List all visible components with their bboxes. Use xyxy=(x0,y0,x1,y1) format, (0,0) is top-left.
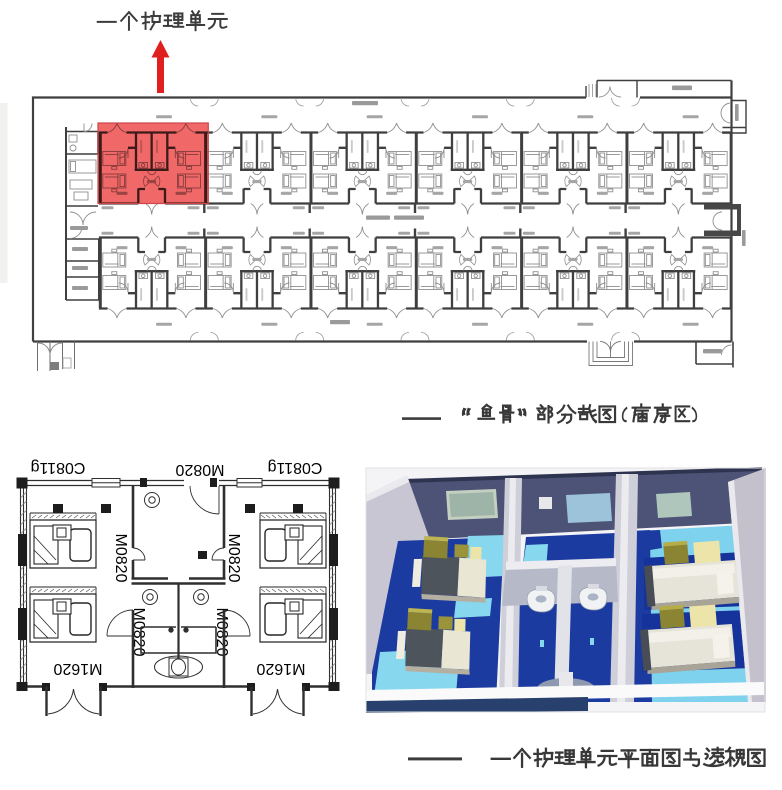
svg-text:M1620: M1620 xyxy=(256,660,305,677)
svg-text:C0811g: C0811g xyxy=(31,459,86,476)
svg-text:M0820: M0820 xyxy=(112,534,129,583)
svg-text:M0820: M0820 xyxy=(175,461,224,478)
svg-text:M1620: M1620 xyxy=(53,660,102,677)
svg-text:M0820: M0820 xyxy=(225,534,242,583)
svg-text:C0811g: C0811g xyxy=(268,459,323,476)
